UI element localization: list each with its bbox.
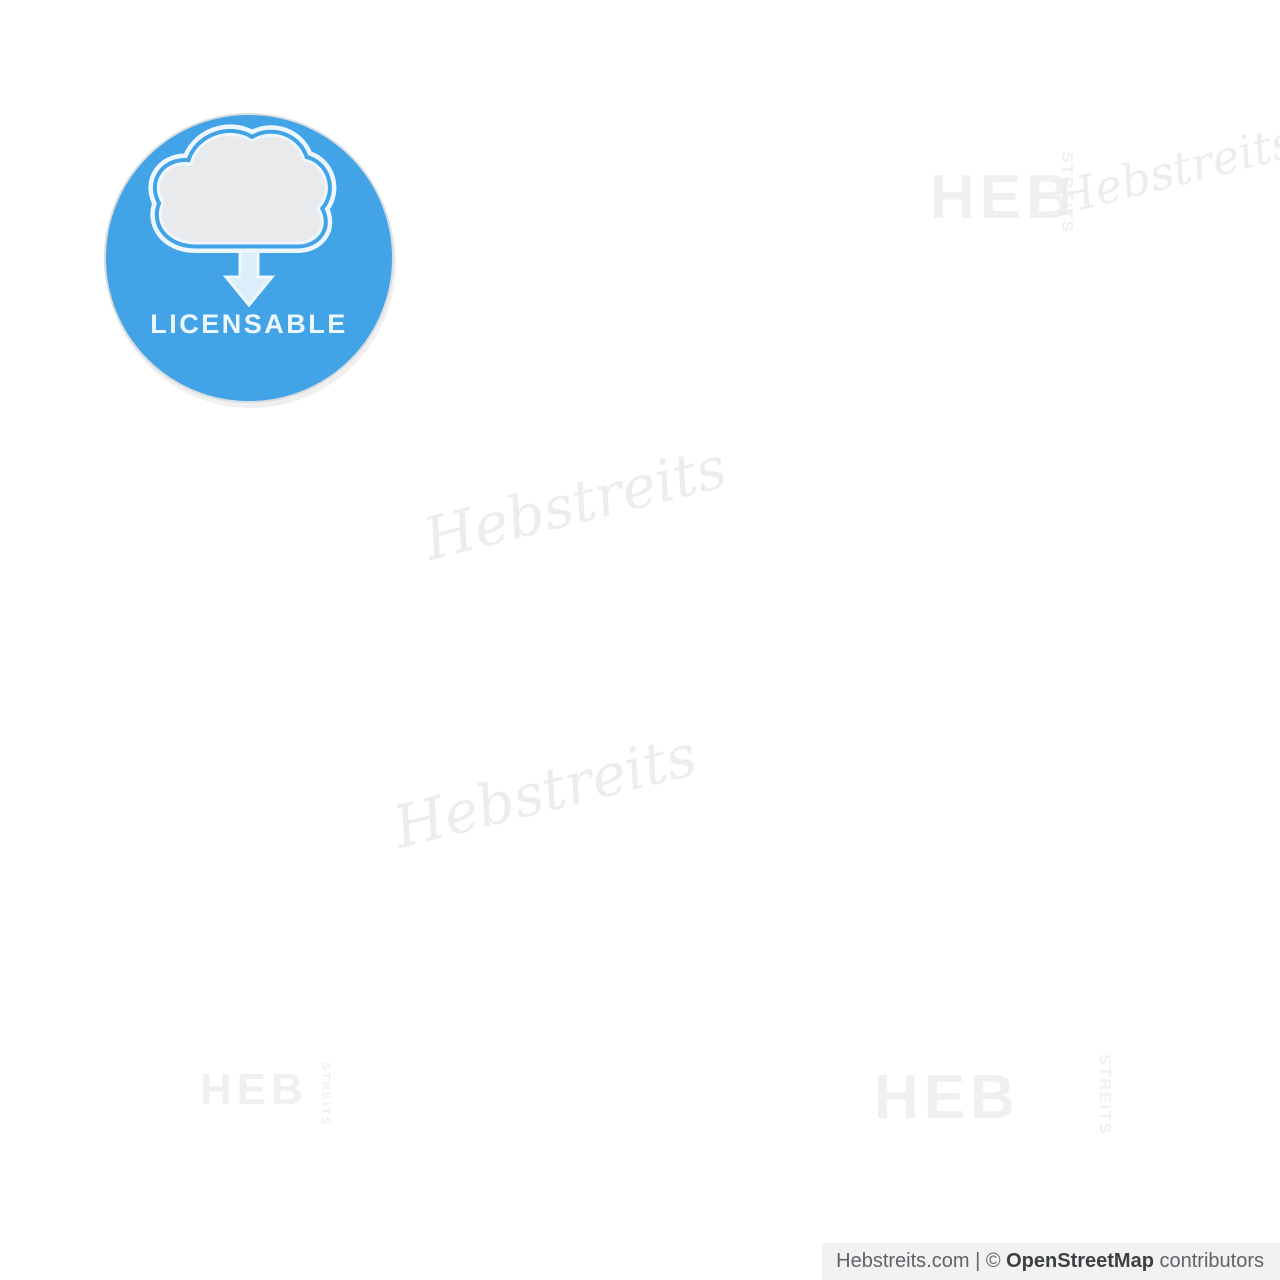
hebstreits-watermark: HEB [874,1063,1020,1132]
attribution-site-link[interactable]: Hebstreits.com [836,1250,969,1273]
hebstreits-watermark-vertical: STREITS [1096,1054,1113,1136]
hebstreits-watermark: HEB [200,1065,308,1114]
licensable-badge: LICENSABLE [105,114,396,408]
attribution-bar: Hebstreits.com | © OpenStreetMap contrib… [822,1243,1280,1280]
hebstreits-watermark-vertical: STREITS [319,1062,333,1127]
attribution-suffix: contributors [1154,1250,1264,1273]
attribution-osm-link[interactable]: OpenStreetMap [1006,1250,1154,1273]
attribution-separator: | [970,1250,986,1273]
attribution-copyright: © [986,1250,1006,1273]
city-map-canvas: HEB STREITS HEB STREITS HEB STREITS Hebs… [0,0,1280,1280]
badge-label: LICENSABLE [150,309,348,339]
